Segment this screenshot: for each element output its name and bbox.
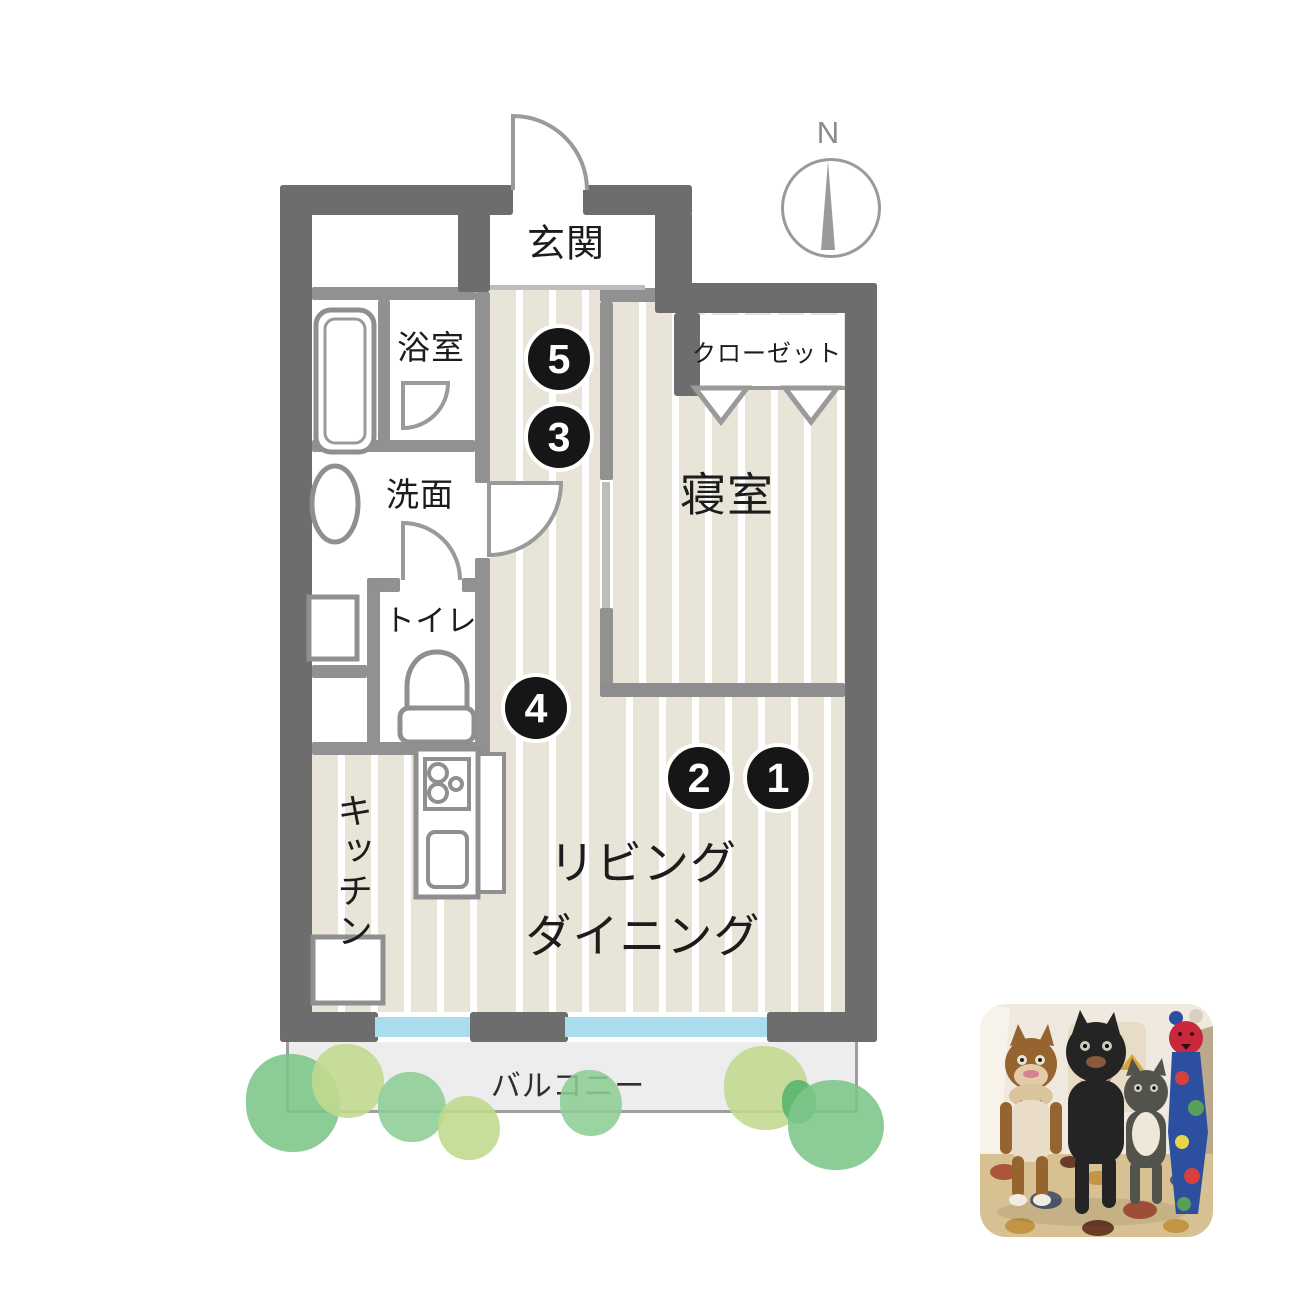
tree <box>378 1072 446 1142</box>
marker-5-label: 5 <box>548 339 571 380</box>
marker-5: 5 <box>524 324 594 394</box>
washbasin-icon <box>312 466 358 542</box>
tree <box>560 1070 622 1136</box>
toilet-door-arc <box>403 523 460 580</box>
tree <box>312 1044 384 1118</box>
wall-bedroom-left <box>600 302 613 480</box>
marker-4: 4 <box>501 673 571 743</box>
wall <box>312 742 490 755</box>
bathtub-icon <box>316 310 374 452</box>
window <box>375 1017 470 1037</box>
wall <box>378 300 390 452</box>
entrance-door-arc <box>513 116 587 190</box>
compass-icon <box>781 158 881 258</box>
wall-outer-bottom <box>470 1012 568 1042</box>
compass-north-label: N <box>817 115 839 151</box>
marker-3-label: 3 <box>548 417 571 458</box>
window <box>565 1017 767 1037</box>
marker-3: 3 <box>524 402 594 472</box>
wall-bedroom-left <box>600 608 613 690</box>
wall <box>475 292 490 483</box>
toilet-icon <box>400 652 474 742</box>
inset-photo-illustration <box>980 1004 1213 1237</box>
wall <box>312 440 475 452</box>
label-washroom: 洗面 <box>386 468 454 516</box>
wall-outer-top <box>583 185 692 215</box>
label-toilet: トイレ <box>385 596 478 640</box>
marker-2-label: 2 <box>688 758 711 799</box>
label-bath: 浴室 <box>397 321 465 369</box>
wall <box>312 665 367 678</box>
label-living-line2: ダイニング <box>526 900 761 966</box>
washing-machine-icon <box>309 597 357 659</box>
wall <box>367 590 380 755</box>
wall-entrance-left <box>458 185 490 292</box>
marker-4-label: 4 <box>525 688 548 729</box>
wall-outer-left <box>280 185 312 1042</box>
inset-photo <box>980 1004 1213 1237</box>
marker-1-label: 1 <box>767 758 790 799</box>
marker-2: 2 <box>664 743 734 813</box>
tree <box>788 1080 884 1170</box>
wall-bedroom-bottom <box>600 683 845 697</box>
wall <box>312 287 475 300</box>
label-bedroom: 寝室 <box>680 459 774 525</box>
wall-bedroom-top <box>655 283 877 313</box>
label-kitchen: キッチン <box>326 792 378 952</box>
label-closet: クローゼット <box>692 334 842 369</box>
entrance-step-line <box>490 285 645 290</box>
wall-outer-right <box>845 283 877 1042</box>
label-entrance: 玄関 <box>527 213 605 268</box>
bathroom-door-arc <box>403 383 448 428</box>
floorplan-canvas: 玄関 浴室 洗面 トイレ キッチン クローゼット 寝室 リビング ダイニング バ… <box>0 0 1300 1300</box>
label-living-line1: リビング <box>549 827 737 893</box>
tree <box>438 1096 500 1160</box>
marker-1: 1 <box>743 743 813 813</box>
wall <box>462 578 490 592</box>
wall-outer-bottom <box>767 1012 877 1042</box>
wall-outer-bottom <box>280 1012 378 1042</box>
sliding-door <box>602 482 610 608</box>
